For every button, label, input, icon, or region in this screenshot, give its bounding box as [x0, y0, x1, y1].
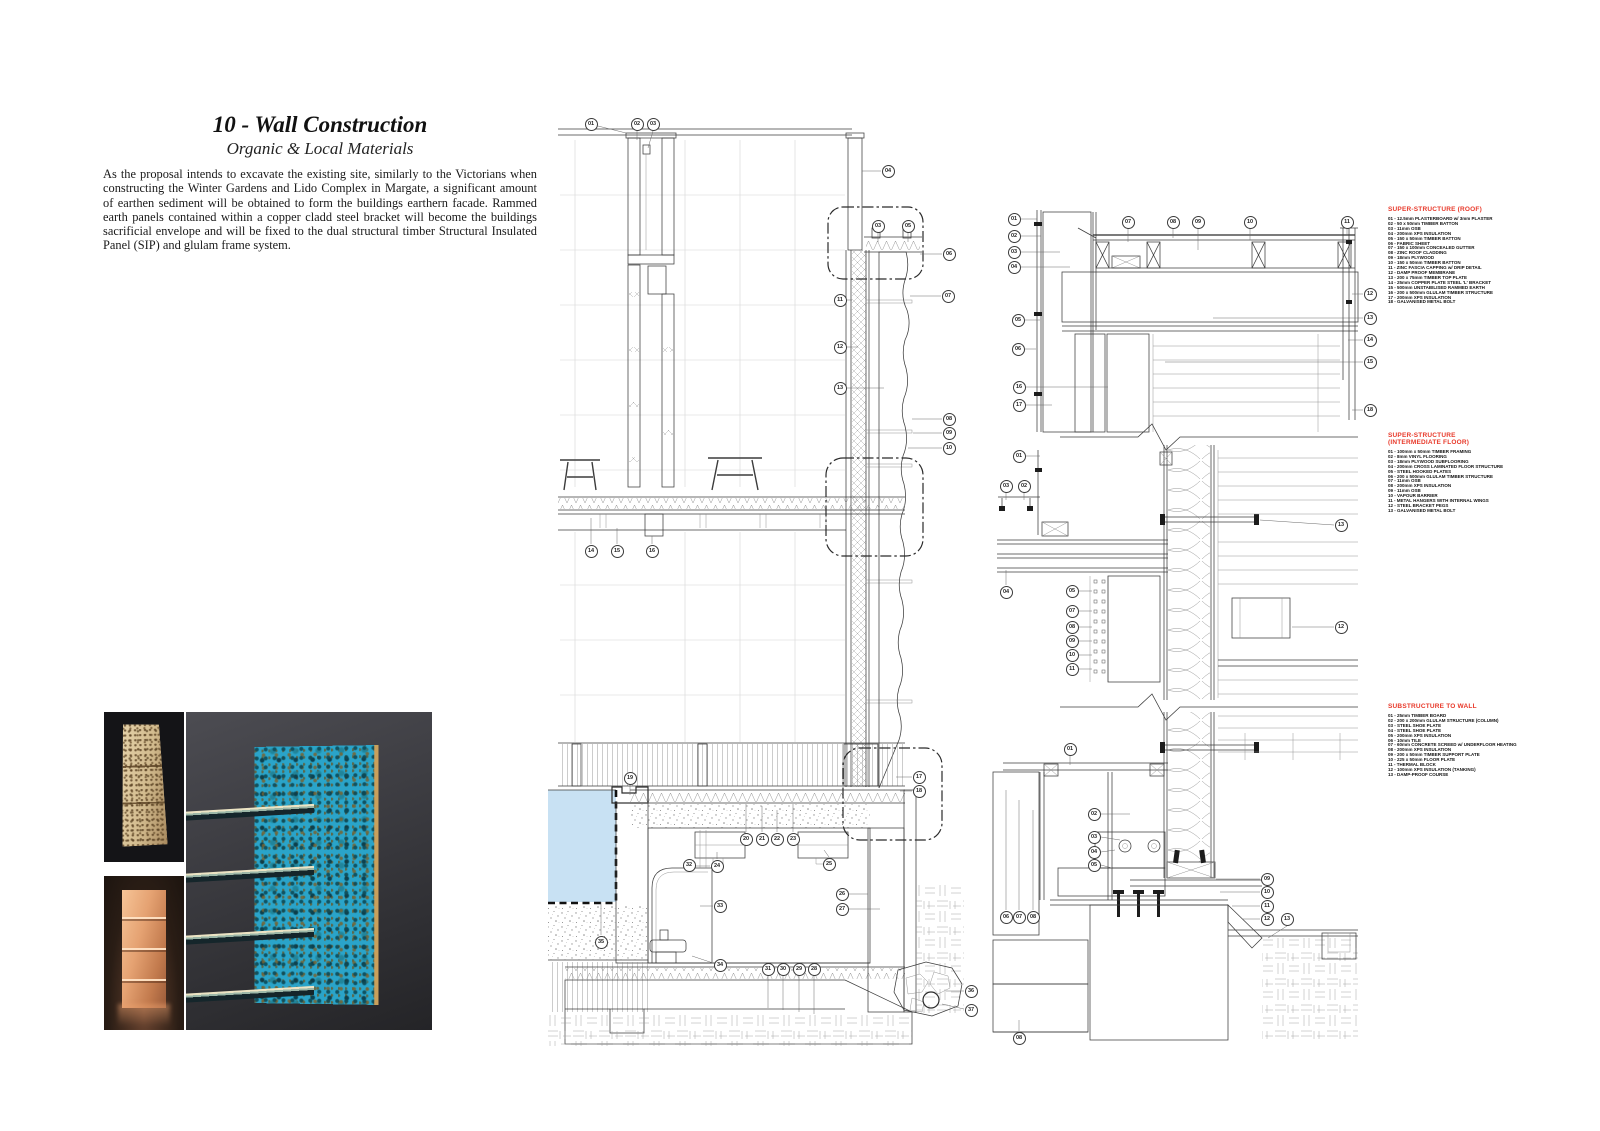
- callout-main-section-34: 34: [714, 959, 727, 972]
- callout-roof-detail-05: 05: [1012, 314, 1025, 327]
- callout-floor-detail-05: 05: [1066, 585, 1079, 598]
- callout-floor-detail-03: 03: [1000, 480, 1013, 493]
- callout-roof-detail-01: 01: [1008, 213, 1021, 226]
- callout-main-section-24: 24: [711, 860, 724, 873]
- callout-substructure-detail-10: 10: [1261, 886, 1274, 899]
- callout-substructure-detail-02: 02: [1088, 808, 1101, 821]
- callout-main-section-08: 08: [943, 413, 956, 426]
- callout-roof-detail-14: 14: [1364, 334, 1377, 347]
- callout-substructure-detail-06: 06: [1000, 911, 1013, 924]
- callout-roof-detail-15: 15: [1364, 356, 1377, 369]
- callout-main-section-03: 03: [872, 220, 885, 233]
- callout-floor-detail-13: 13: [1335, 519, 1348, 532]
- callout-floor-detail-01: 01: [1013, 450, 1026, 463]
- callout-main-section-09: 09: [943, 427, 956, 440]
- callout-main-section-13: 13: [834, 382, 847, 395]
- substructure-detail-drawing: [993, 694, 1358, 1040]
- callout-main-section-17: 17: [913, 771, 926, 784]
- callout-substructure-detail-12: 12: [1261, 913, 1274, 926]
- callout-roof-detail-18: 18: [1364, 404, 1377, 417]
- callout-main-section-06: 06: [943, 248, 956, 261]
- callout-main-section-03: 03: [647, 118, 660, 131]
- callout-roof-detail-09: 09: [1192, 216, 1205, 229]
- callout-main-section-12: 12: [834, 341, 847, 354]
- callout-substructure-detail-13: 13: [1281, 913, 1294, 926]
- callout-main-section-02: 02: [631, 118, 644, 131]
- callout-main-section-16: 16: [646, 545, 659, 558]
- callout-substructure-detail-08: 08: [1013, 1032, 1026, 1045]
- roof-detail-drawing: [1021, 210, 1363, 432]
- callout-main-section-22: 22: [771, 833, 784, 846]
- callout-main-section-10: 10: [943, 442, 956, 455]
- callout-main-section-05: 05: [902, 220, 915, 233]
- callout-main-section-33: 33: [714, 900, 727, 913]
- callout-main-section-29: 29: [793, 963, 806, 976]
- callout-main-section-01: 01: [585, 118, 598, 131]
- callout-main-section-27: 27: [836, 903, 849, 916]
- callout-main-section-36: 36: [965, 985, 978, 998]
- callout-main-section-32: 32: [683, 859, 696, 872]
- presentation-board: 10 - Wall Construction Organic & Local M…: [0, 0, 1600, 1131]
- callout-main-section-11: 11: [834, 294, 847, 307]
- callout-main-section-35: 35: [595, 936, 608, 949]
- callout-main-section-20: 20: [740, 833, 753, 846]
- callout-substructure-detail-07: 07: [1013, 911, 1026, 924]
- callout-main-section-18: 18: [913, 785, 926, 798]
- callout-main-section-25: 25: [823, 858, 836, 871]
- callout-main-section-19: 19: [624, 772, 637, 785]
- callout-floor-detail-08: 08: [1066, 621, 1079, 634]
- callout-main-section-15: 15: [611, 545, 624, 558]
- callout-roof-detail-08: 08: [1167, 216, 1180, 229]
- wall-assembly: [846, 250, 912, 788]
- callout-substructure-detail-04: 04: [1088, 846, 1101, 859]
- callout-main-section-04: 04: [882, 165, 895, 178]
- callout-roof-detail-10: 10: [1244, 216, 1257, 229]
- callout-main-section-30: 30: [777, 963, 790, 976]
- callout-roof-detail-06: 06: [1012, 343, 1025, 356]
- callout-main-section-14: 14: [585, 545, 598, 558]
- callout-roof-detail-13: 13: [1364, 312, 1377, 325]
- callout-roof-detail-11: 11: [1341, 216, 1354, 229]
- callout-roof-detail-17: 17: [1013, 399, 1026, 412]
- callout-substructure-detail-11: 11: [1261, 900, 1274, 913]
- callout-roof-detail-04: 04: [1008, 261, 1021, 274]
- main-section-drawing: [548, 126, 964, 1046]
- callout-floor-detail-04: 04: [1000, 586, 1013, 599]
- callout-main-section-23: 23: [787, 833, 800, 846]
- callout-floor-detail-07: 07: [1066, 605, 1079, 618]
- callout-floor-detail-09: 09: [1066, 635, 1079, 648]
- callout-main-section-28: 28: [808, 963, 821, 976]
- callout-substructure-detail-03: 03: [1088, 831, 1101, 844]
- callout-roof-detail-16: 16: [1013, 381, 1026, 394]
- callout-main-section-37: 37: [965, 1004, 978, 1017]
- callout-floor-detail-10: 10: [1066, 649, 1079, 662]
- callout-roof-detail-07: 07: [1122, 216, 1135, 229]
- callout-substructure-detail-08: 08: [1027, 911, 1040, 924]
- furniture: [560, 458, 762, 490]
- callout-roof-detail-03: 03: [1008, 246, 1021, 259]
- callout-substructure-detail-01: 01: [1064, 743, 1077, 756]
- callout-floor-detail-02: 02: [1018, 480, 1031, 493]
- callout-roof-detail-02: 02: [1008, 230, 1021, 243]
- floor-detail-drawing: [997, 424, 1358, 700]
- callout-main-section-07: 07: [942, 290, 955, 303]
- callout-main-section-31: 31: [762, 963, 775, 976]
- callout-floor-detail-12: 12: [1335, 621, 1348, 634]
- callout-main-section-21: 21: [756, 833, 769, 846]
- callout-main-section-26: 26: [836, 888, 849, 901]
- callout-floor-detail-11: 11: [1066, 663, 1079, 676]
- construction-drawings: [0, 0, 1600, 1131]
- callout-roof-detail-12: 12: [1364, 288, 1377, 301]
- callout-substructure-detail-09: 09: [1261, 873, 1274, 886]
- callout-substructure-detail-05: 05: [1088, 859, 1101, 872]
